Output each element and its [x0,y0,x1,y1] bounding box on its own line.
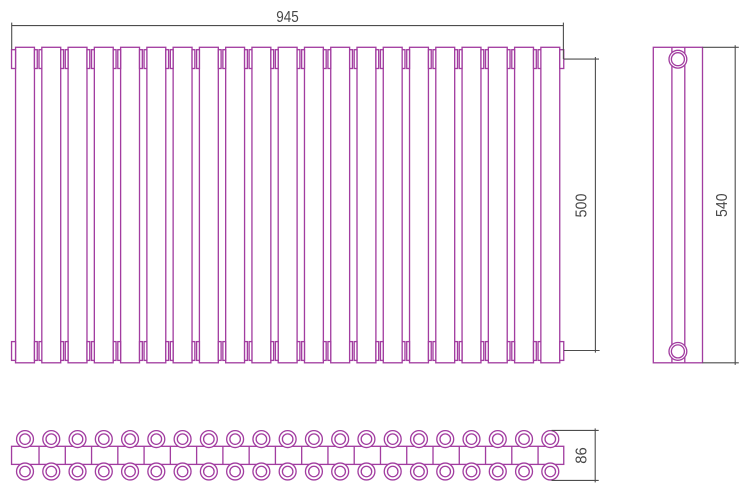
svg-text:86: 86 [573,447,590,464]
svg-text:540: 540 [714,193,731,217]
svg-text:945: 945 [276,9,299,26]
svg-text:500: 500 [573,193,590,217]
